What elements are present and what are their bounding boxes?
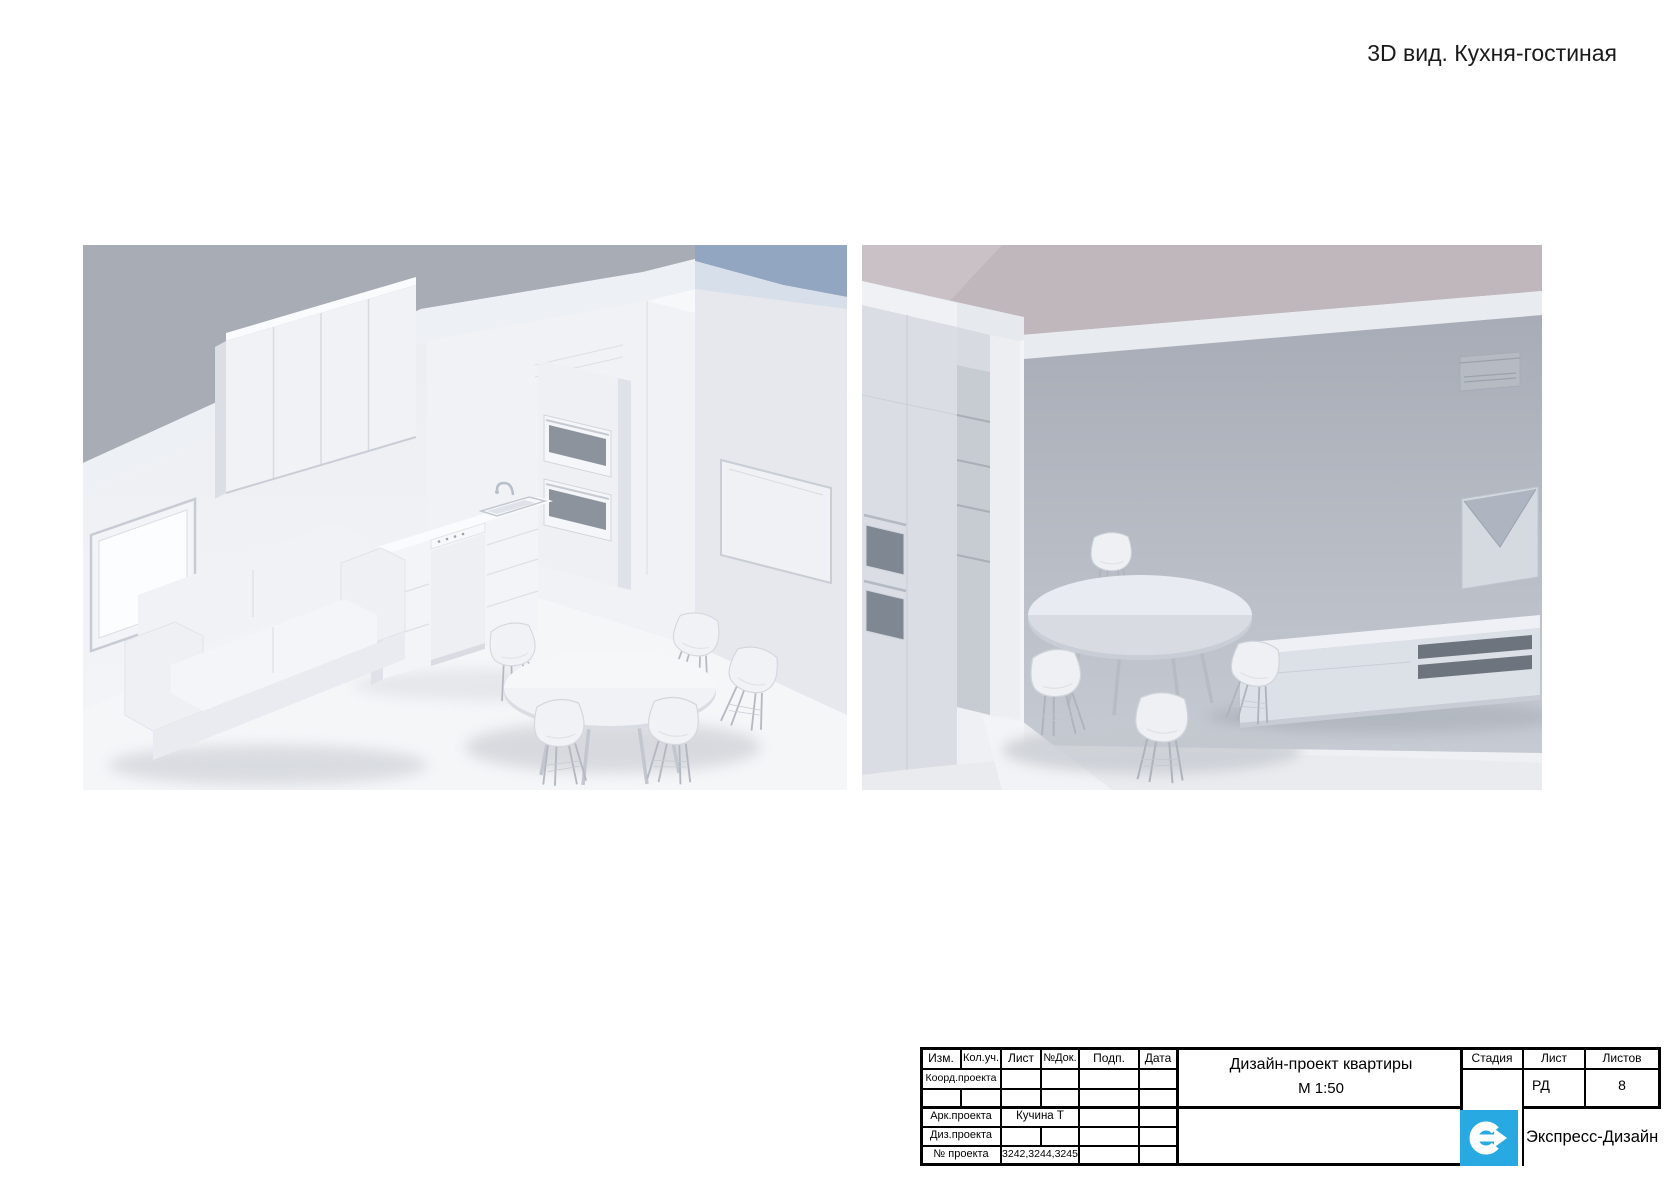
render-dining-area-illustration: [862, 245, 1542, 790]
title-block: Изм. Кол.уч. Лист №Док. Подп. Дата Коорд…: [920, 1047, 1661, 1166]
render-kitchen-sofa-illustration: [83, 245, 847, 790]
render-kitchen-sofa-view: [83, 245, 847, 790]
sheets-value: 8: [1586, 1075, 1658, 1095]
header-sheets: Листов: [1586, 1050, 1658, 1066]
sheet-value: РД: [1532, 1075, 1584, 1095]
header-podp: Подп.: [1078, 1050, 1140, 1066]
table-line: [920, 1163, 1463, 1166]
header-dok: №Док.: [1040, 1050, 1080, 1066]
table-line: [1658, 1047, 1661, 1108]
row-diz-label: Диз.проекта: [920, 1128, 1002, 1143]
table-line: [1040, 1126, 1042, 1145]
header-koluch: Кол.уч.: [960, 1050, 1002, 1066]
company-name: Экспресс-Дизайн: [1526, 1126, 1660, 1148]
table-line: [960, 1088, 962, 1106]
render-dining-area-view: [862, 245, 1542, 790]
table-line: [1460, 1068, 1661, 1070]
table-line: [1522, 1106, 1661, 1109]
stage-value: [1462, 1075, 1522, 1095]
header-data: Дата: [1138, 1050, 1178, 1066]
project-scale: М 1:50: [1182, 1079, 1460, 1097]
row-koord-label: Коорд.проекта: [920, 1070, 1002, 1086]
header-sheet: Лист: [1524, 1050, 1584, 1066]
express-design-logo-icon: [1460, 1110, 1518, 1166]
header-list: Лист: [1000, 1050, 1042, 1066]
row-nproekt-label: № проекта: [920, 1147, 1002, 1161]
project-title: Дизайн-проект квартиры: [1182, 1055, 1460, 1075]
page-title: 3D вид. Кухня-гостиная: [1367, 40, 1617, 67]
row-ark-value: Кучина Т: [1000, 1109, 1080, 1124]
row-nproekt-value: 3242,3244,3245: [1000, 1147, 1080, 1161]
table-line: [920, 1088, 1179, 1090]
header-stadia: Стадия: [1462, 1050, 1522, 1066]
header-izm: Изм.: [920, 1050, 962, 1066]
row-ark-label: Арк.проекта: [920, 1109, 1002, 1124]
